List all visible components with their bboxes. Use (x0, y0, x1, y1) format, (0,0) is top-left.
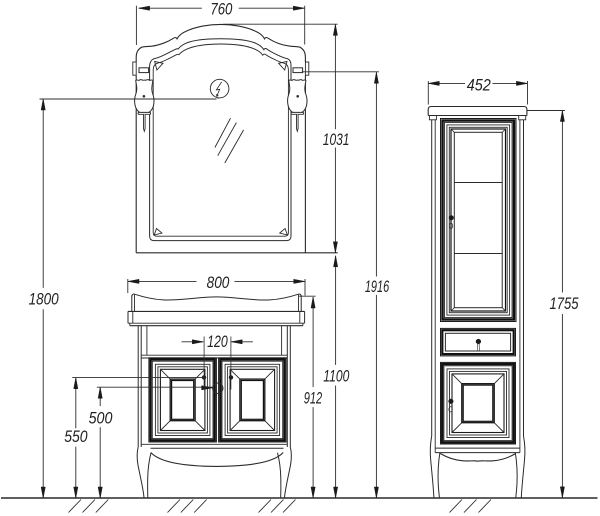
svg-text:912: 912 (304, 390, 322, 408)
svg-text:1031: 1031 (323, 131, 350, 149)
svg-text:1916: 1916 (365, 278, 390, 296)
svg-text:800: 800 (207, 274, 230, 292)
svg-text:760: 760 (210, 1, 232, 19)
svg-text:452: 452 (467, 76, 491, 94)
svg-text:1755: 1755 (550, 295, 580, 313)
svg-text:1800: 1800 (29, 290, 59, 308)
svg-text:550: 550 (64, 428, 87, 446)
svg-text:120: 120 (207, 333, 228, 351)
svg-text:500: 500 (89, 409, 113, 427)
svg-text:1100: 1100 (323, 368, 349, 386)
